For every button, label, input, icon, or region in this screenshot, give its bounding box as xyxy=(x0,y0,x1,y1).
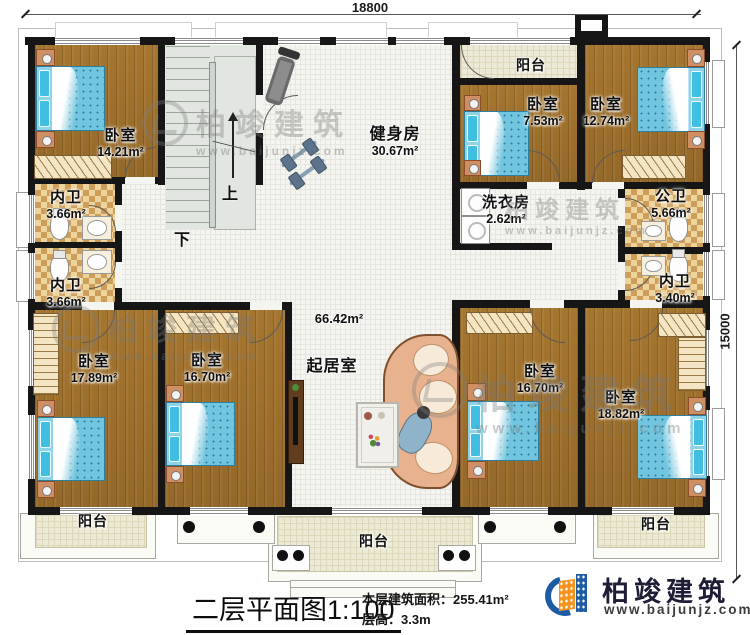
brand-url: www.baijunjz.com xyxy=(604,602,750,617)
wall-1789-right xyxy=(158,302,165,508)
room-name: 阳台 xyxy=(78,514,108,530)
bed-bedroom-1274 xyxy=(637,67,705,132)
door-opening xyxy=(618,262,625,290)
room-area: 16.70m² xyxy=(517,381,564,395)
plan-area-row: 本层建筑面积：255.41m² xyxy=(362,590,509,610)
nightstand xyxy=(166,466,184,483)
porch-column xyxy=(484,521,496,533)
room-label-bedroom-1670r: 卧室 16.70m² xyxy=(500,364,580,395)
room-label-neiwei-lower: 内卫 3.66m² xyxy=(38,278,94,309)
bed-pillows xyxy=(689,68,704,131)
bed-pillows xyxy=(167,403,182,465)
room-name: 公卫 xyxy=(655,189,687,206)
window xyxy=(28,195,35,243)
window xyxy=(55,37,140,45)
room-area: 17.89m² xyxy=(71,371,118,385)
bed-blanket xyxy=(480,112,505,175)
door-opening xyxy=(527,182,559,189)
wall-753-balcony xyxy=(455,78,580,85)
balcony-column xyxy=(293,550,304,561)
room-label-balcony-bc: 阳台 xyxy=(339,534,409,550)
window xyxy=(28,253,35,299)
room-name: 卧室 xyxy=(527,97,559,114)
bed-blanket xyxy=(53,418,80,480)
bed-mattress xyxy=(638,416,691,478)
bed-mattress xyxy=(52,67,104,130)
room-label-laundry: 洗衣房 2.62m² xyxy=(468,195,544,226)
bed-bedroom-tl xyxy=(36,66,105,131)
nightstand xyxy=(467,461,486,479)
bed-bedroom-1670l xyxy=(166,402,235,466)
room-area: 2.62m² xyxy=(486,212,526,226)
room-name: 阳台 xyxy=(641,517,671,533)
dimension-tick xyxy=(732,574,741,583)
stair-arrowhead xyxy=(228,112,238,121)
stair-rail xyxy=(209,62,216,228)
window-balcony-top xyxy=(470,37,570,45)
shelf-bedroom-1882 xyxy=(678,337,706,391)
brand-logo-icon xyxy=(545,568,595,620)
room-name: 卧室 xyxy=(104,128,136,145)
bed-blanket xyxy=(52,67,79,130)
window xyxy=(336,37,388,45)
room-area-living: 66.42m² xyxy=(299,312,379,327)
room-label-balcony-br: 阳台 xyxy=(621,517,691,533)
wall-gongwei-divider xyxy=(618,247,710,254)
window xyxy=(490,507,548,515)
wardrobe-bedroom-1882 xyxy=(658,313,706,337)
wall-balcony-gym xyxy=(452,37,460,82)
balcony-column xyxy=(277,550,288,561)
room-label-gym: 健身房 30.67m² xyxy=(350,126,440,158)
logo-building-orange xyxy=(559,579,575,611)
dimension-width: 18800 xyxy=(330,0,410,15)
room-label-bedroom-1882: 卧室 18.82m² xyxy=(581,390,661,421)
wall-753-left xyxy=(452,78,460,190)
porch-column xyxy=(183,521,195,533)
bed-pillows xyxy=(468,402,483,460)
room-name: 健身房 xyxy=(369,126,420,144)
table-item xyxy=(378,412,385,419)
porch-column xyxy=(253,521,265,533)
room-area: 3.40m² xyxy=(655,291,695,305)
room-name: 内卫 xyxy=(50,190,82,207)
window-sill xyxy=(712,60,725,128)
logo-building-blue xyxy=(576,574,587,612)
room-label-balcony-top: 阳台 xyxy=(496,58,566,74)
bed-pillows xyxy=(37,67,52,130)
bed-bedroom-1882 xyxy=(637,415,707,479)
plan-area-value: 255.41m² xyxy=(453,592,509,607)
coffee-table xyxy=(356,402,399,468)
room-name: 卧室 xyxy=(78,354,110,371)
room-area: 3.66m² xyxy=(46,207,86,221)
bed-bedroom-1789 xyxy=(37,417,105,481)
nightstand xyxy=(687,131,705,149)
nightstand xyxy=(464,95,481,111)
room-area: 18.82m² xyxy=(598,407,645,421)
window xyxy=(396,37,444,45)
wardrobe-bedroom-1274 xyxy=(622,155,686,179)
wall-laundry-left xyxy=(452,184,460,250)
balcony-column xyxy=(443,550,454,561)
room-name: 内卫 xyxy=(659,274,691,291)
window xyxy=(278,37,320,45)
room-label-bedroom-1789: 卧室 17.89m² xyxy=(54,354,134,385)
nightstand xyxy=(36,49,55,66)
bed-bedroom-1670r xyxy=(467,401,539,461)
plant xyxy=(292,384,299,391)
wardrobe-bedroom-1670l xyxy=(165,312,239,334)
stair-treads xyxy=(166,46,210,228)
room-label-neiwei-upper: 内卫 3.66m² xyxy=(38,190,94,221)
room-name: 卧室 xyxy=(590,97,622,114)
stair-arrow xyxy=(232,120,234,178)
window-sill xyxy=(712,408,725,480)
room-label-neiwei-340: 内卫 3.40m² xyxy=(637,274,713,305)
floor-plan-canvas: 上 下 xyxy=(0,0,750,635)
door-opening xyxy=(618,198,625,226)
room-area: 66.42m² xyxy=(315,312,363,327)
nightstand xyxy=(37,481,55,498)
window-living-door xyxy=(332,507,422,515)
plan-height-row: 层高：3.3m xyxy=(362,610,509,630)
plan-height-value: 3.3m xyxy=(401,612,431,627)
wall-laundry-bottom xyxy=(452,243,552,250)
plan-height-label: 层高： xyxy=(362,612,401,627)
nightstand xyxy=(688,479,706,497)
room-label-gongwei: 公卫 5.66m² xyxy=(633,189,709,220)
stair-up-label: 上 xyxy=(222,180,238,204)
room-area: 3.66m² xyxy=(46,295,86,309)
nightstand xyxy=(688,397,706,415)
window xyxy=(175,37,243,45)
room-name: 卧室 xyxy=(605,390,637,407)
room-area: 30.67m² xyxy=(372,144,419,158)
dimension-line-right xyxy=(736,45,737,580)
nightstand xyxy=(36,131,55,148)
chimney-flue xyxy=(581,20,602,31)
sink xyxy=(641,221,666,241)
window-sill xyxy=(712,193,725,247)
door-opening xyxy=(115,262,122,288)
porch-column xyxy=(554,521,566,533)
room-name: 阳台 xyxy=(516,58,546,74)
nightstand xyxy=(467,383,486,401)
bed-mattress xyxy=(53,418,104,480)
stair-down-label: 下 xyxy=(174,226,190,250)
room-label-living: 起居室 xyxy=(292,358,372,376)
plan-title-text: 二层平面图 xyxy=(192,595,327,625)
window xyxy=(612,507,674,515)
room-area: 7.53m² xyxy=(523,114,563,128)
bed-blanket xyxy=(662,68,689,131)
tv-screen xyxy=(293,397,298,445)
window xyxy=(28,415,35,479)
person-head xyxy=(417,406,430,419)
table-item xyxy=(364,412,372,420)
room-area: 12.74m² xyxy=(583,114,630,128)
wardrobe-bedroom-1670r xyxy=(466,312,533,334)
bed-blanket xyxy=(483,402,512,460)
plan-stats: 本层建筑面积：255.41m² 层高：3.3m xyxy=(362,590,509,630)
room-name: 内卫 xyxy=(50,278,82,295)
nightstand xyxy=(37,400,55,417)
room-label-balcony-bl: 阳台 xyxy=(58,514,128,530)
bed-mattress xyxy=(182,403,234,465)
bed-pillows xyxy=(691,416,706,478)
nightstand xyxy=(166,385,184,402)
door-opening xyxy=(125,177,155,184)
room-name: 卧室 xyxy=(191,353,223,370)
sink xyxy=(82,250,112,274)
window-sill xyxy=(712,250,725,300)
room-area: 5.66m² xyxy=(651,206,691,220)
dimension-height: 15000 xyxy=(718,302,733,362)
tv-cabinet xyxy=(288,380,304,464)
room-name: 洗衣房 xyxy=(482,195,530,212)
plan-area-label: 本层建筑面积： xyxy=(362,592,453,607)
room-label-bedroom-1670l: 卧室 16.70m² xyxy=(167,353,247,384)
door-opening xyxy=(530,300,564,308)
room-label-bedroom-1274: 卧室 12.74m² xyxy=(568,97,644,128)
room-name: 阳台 xyxy=(359,534,389,550)
room-area: 14.21m² xyxy=(97,145,144,159)
wall-bath-right xyxy=(115,184,122,310)
door-opening xyxy=(592,182,624,189)
room-label-bedroom-tl: 卧室 14.21m² xyxy=(78,128,163,159)
door-opening xyxy=(250,302,282,310)
bed-mattress xyxy=(638,68,689,131)
wall-stair-left xyxy=(158,37,165,185)
room-name: 起居室 xyxy=(306,358,357,376)
door-opening xyxy=(115,205,122,231)
balcony-column xyxy=(459,550,470,561)
nightstand xyxy=(464,160,481,176)
window xyxy=(190,507,248,515)
wall-bath-divider xyxy=(28,242,122,248)
bed-blanket xyxy=(182,403,209,465)
room-name: 卧室 xyxy=(524,364,556,381)
flower-vase xyxy=(366,432,382,448)
room-area: 16.70m² xyxy=(184,370,231,384)
bed-blanket xyxy=(663,416,691,478)
nightstand xyxy=(687,49,705,67)
bed-pillows xyxy=(38,418,53,480)
bed-mattress xyxy=(483,402,538,460)
